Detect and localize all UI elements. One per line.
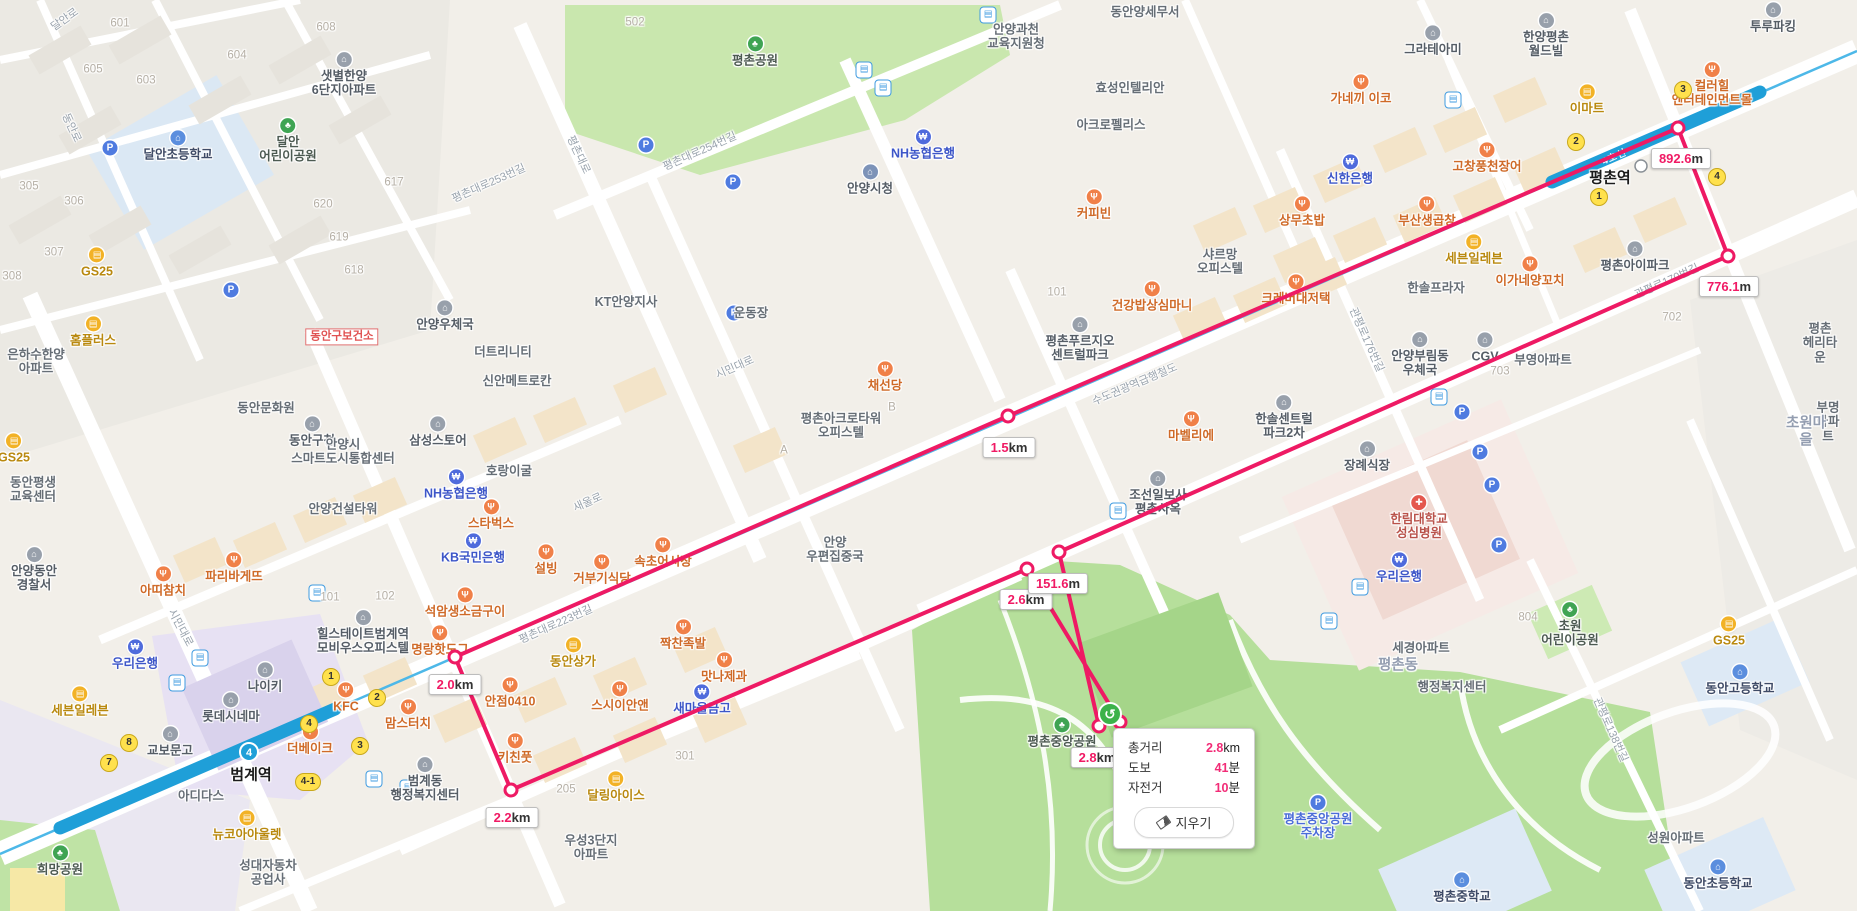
measure-route-layer: ↺: [0, 0, 1857, 911]
distance-label: 892.6m: [1651, 148, 1711, 169]
measure-route-vertex[interactable]: [449, 651, 461, 663]
measure-route-line: [455, 128, 1728, 790]
distance-label: 776.1m: [1699, 276, 1759, 297]
measure-route-vertex[interactable]: [505, 784, 517, 796]
map-canvas[interactable]: 4 60160560360460850230530630730861762061…: [0, 0, 1857, 911]
clear-button-label: 지우기: [1176, 813, 1212, 832]
measure-route-vertex[interactable]: [1053, 546, 1065, 558]
measure-summary-popup: 총거리2.8km도보41분자전거10분 지우기: [1113, 728, 1255, 849]
distance-label: 2.2km: [486, 807, 539, 828]
undo-icon: ↺: [1104, 706, 1116, 722]
summary-row: 총거리2.8km: [1114, 738, 1254, 758]
distance-label: 151.6m: [1028, 573, 1088, 594]
eraser-icon: [1155, 815, 1171, 830]
summary-row: 도보41분: [1114, 758, 1254, 778]
clear-measurement-button[interactable]: 지우기: [1134, 807, 1234, 838]
distance-label: 1.5km: [983, 437, 1036, 458]
summary-row: 자전거10분: [1114, 778, 1254, 798]
measure-route-vertex[interactable]: [1722, 250, 1734, 262]
measure-route-vertex[interactable]: [1002, 410, 1014, 422]
measure-route-vertex[interactable]: [1672, 122, 1684, 134]
distance-label: 2.0km: [429, 674, 482, 695]
